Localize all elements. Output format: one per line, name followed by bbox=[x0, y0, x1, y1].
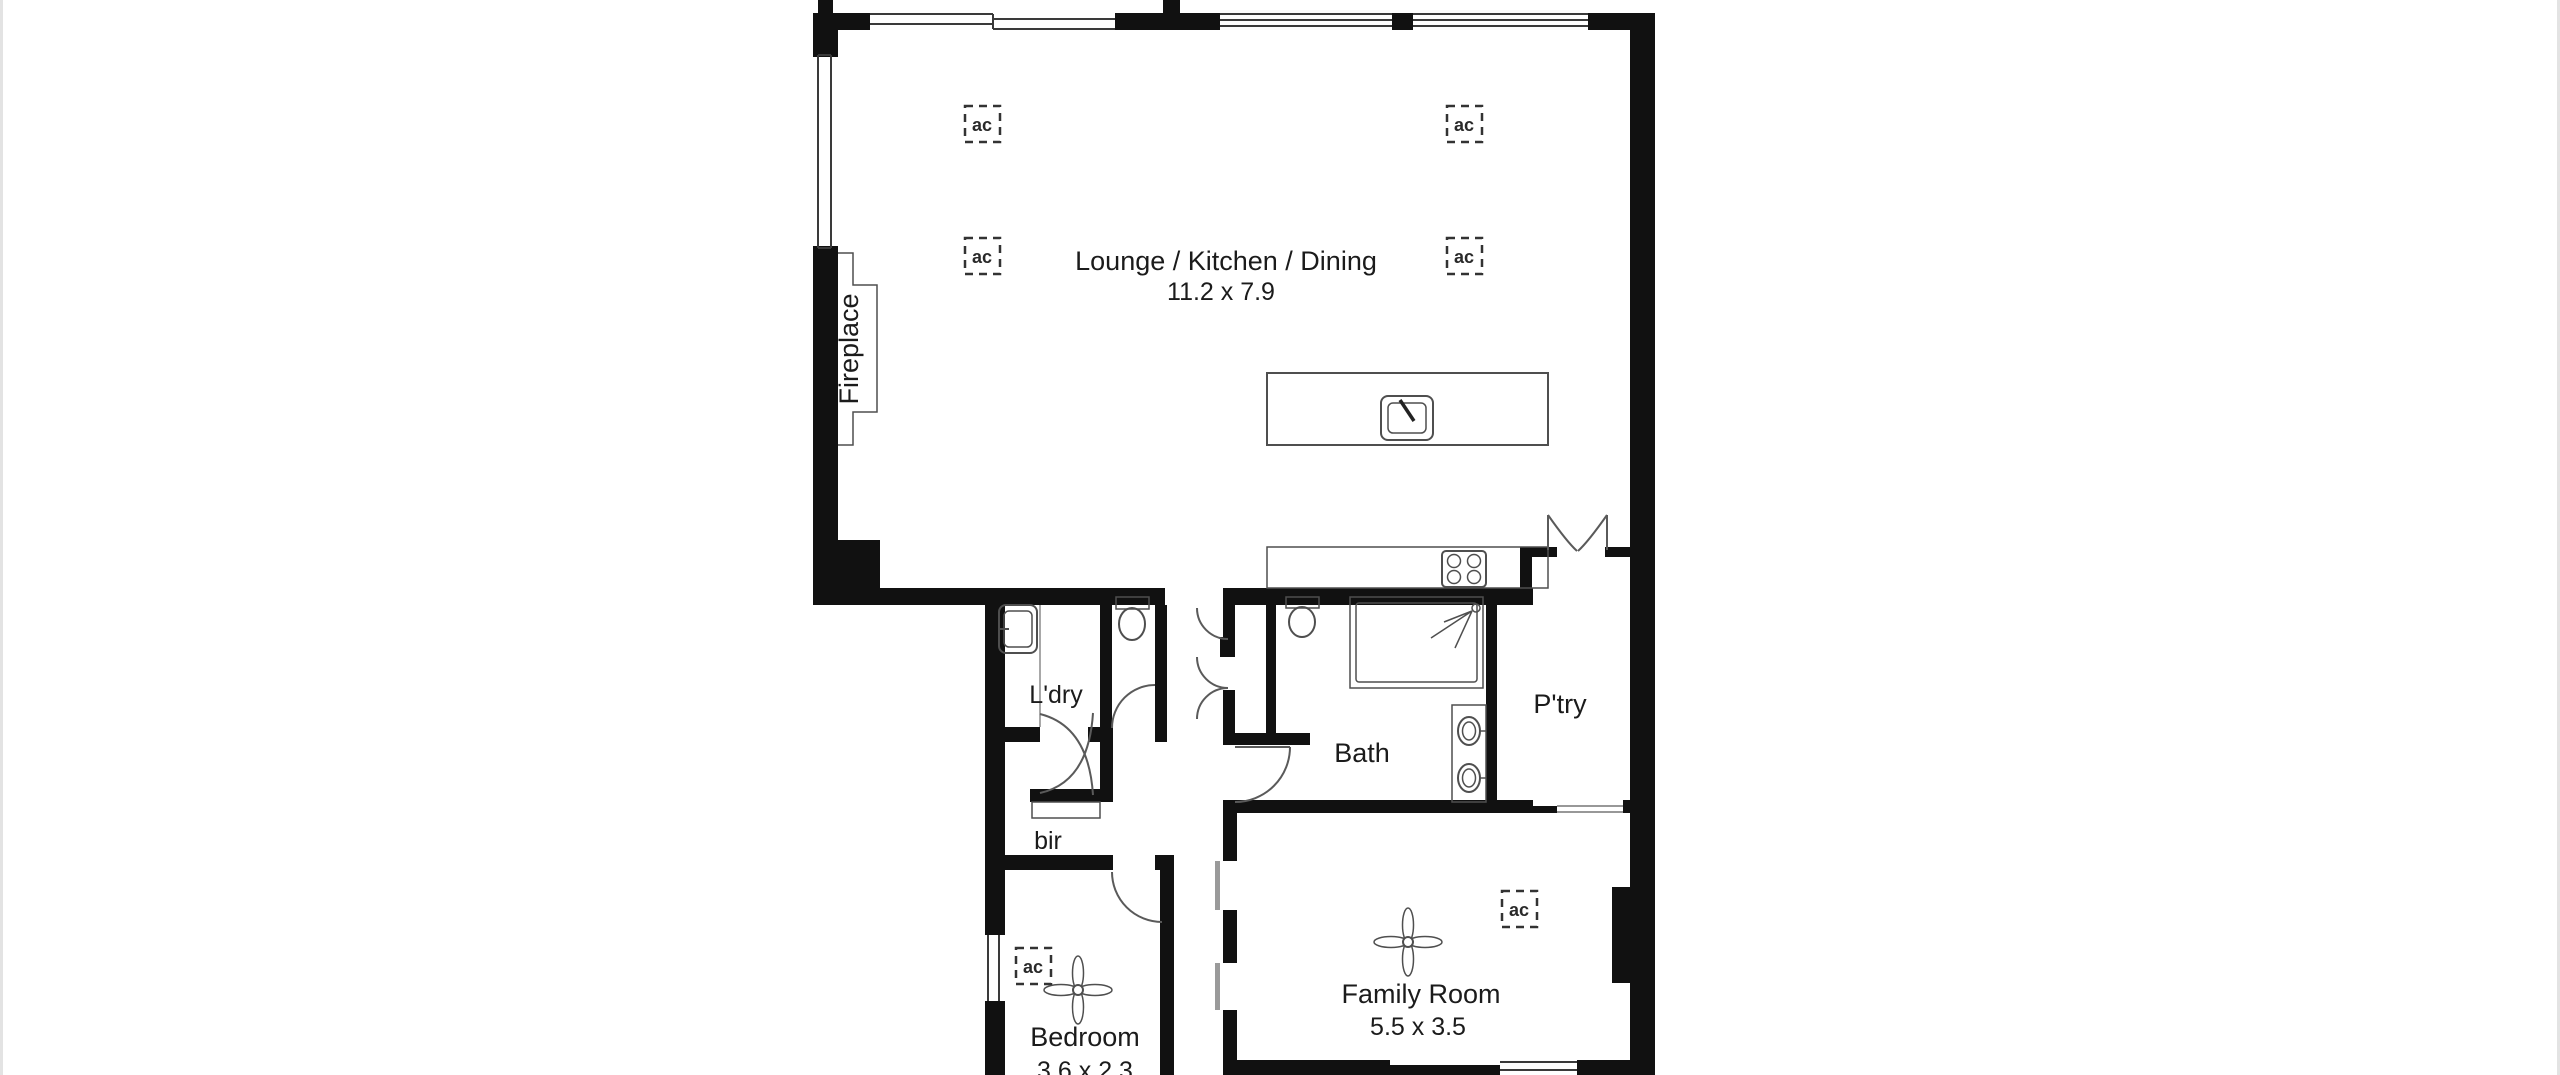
svg-text:ac: ac bbox=[1454, 247, 1474, 267]
ac-unit-icon: ac bbox=[1447, 238, 1482, 274]
robe-label: bir bbox=[1034, 827, 1062, 855]
vanity-icon bbox=[1452, 705, 1486, 802]
bedroom-label: Bedroom bbox=[1030, 1022, 1140, 1052]
ac-unit-icon: ac bbox=[965, 238, 1000, 274]
kitchen-island bbox=[1267, 373, 1548, 445]
window-top-1 bbox=[870, 14, 993, 29]
ceiling-fan-icon-family bbox=[1374, 908, 1442, 976]
robe-shelf bbox=[1032, 802, 1100, 818]
family-room-dimensions: 5.5 x 3.5 bbox=[1370, 1013, 1466, 1041]
ac-unit-icon: ac bbox=[1502, 891, 1537, 927]
svg-text:ac: ac bbox=[972, 247, 992, 267]
window-bottom-family bbox=[1500, 1062, 1577, 1070]
shower-icon bbox=[1350, 597, 1483, 688]
bath-label: Bath bbox=[1334, 738, 1390, 768]
bedroom-door bbox=[1112, 872, 1162, 922]
window-top-3 bbox=[1220, 14, 1392, 26]
fireplace-label: Fireplace bbox=[834, 293, 864, 404]
ac-unit-icon: ac bbox=[965, 106, 1000, 142]
kitchen-bench bbox=[1267, 547, 1548, 588]
svg-text:ac: ac bbox=[1454, 115, 1474, 135]
sink-icon bbox=[1381, 396, 1433, 440]
ac-unit-icon: ac bbox=[1447, 106, 1482, 142]
window-bedroom bbox=[988, 935, 999, 1001]
pantry-french-doors bbox=[1548, 515, 1607, 551]
lounge-dimensions: 11.2 x 7.9 bbox=[1167, 278, 1275, 306]
floor-plan-image: ac ac ac ac ac ac Lounge / Kitchen / Din… bbox=[0, 0, 2560, 1075]
laundry-label: L'dry bbox=[1029, 681, 1083, 709]
floor-plan-svg: ac ac ac ac ac ac Lounge / Kitchen / Din… bbox=[0, 0, 2560, 1075]
photo-left-edge bbox=[0, 0, 3, 1075]
laundry-door bbox=[1040, 713, 1093, 795]
pantry-label: P'try bbox=[1533, 689, 1587, 719]
pantry-opening-threshold bbox=[1557, 806, 1623, 812]
ceiling-fan-icon-bedroom bbox=[1044, 956, 1112, 1024]
laundry-trough-icon bbox=[999, 605, 1037, 653]
family-room-label: Family Room bbox=[1341, 979, 1500, 1009]
svg-text:ac: ac bbox=[972, 115, 992, 135]
lounge-label: Lounge / Kitchen / Dining bbox=[1075, 246, 1377, 276]
room-labels: Lounge / Kitchen / Dining 11.2 x 7.9 Fir… bbox=[834, 246, 1587, 1075]
bath-door bbox=[1235, 747, 1290, 802]
window-top-2 bbox=[993, 19, 1115, 29]
cooktop-icon bbox=[1442, 551, 1486, 587]
ac-unit-icon: ac bbox=[1016, 948, 1051, 984]
bedroom-dimensions: 3.6 x 2.3 bbox=[1037, 1057, 1133, 1075]
window-top-4 bbox=[1413, 14, 1588, 26]
family-room-sliding-doors bbox=[1215, 861, 1220, 1010]
window-left-lounge bbox=[818, 55, 831, 248]
svg-text:ac: ac bbox=[1509, 900, 1529, 920]
svg-text:ac: ac bbox=[1023, 957, 1043, 977]
wc-door bbox=[1112, 685, 1155, 728]
windows bbox=[818, 14, 1588, 1070]
